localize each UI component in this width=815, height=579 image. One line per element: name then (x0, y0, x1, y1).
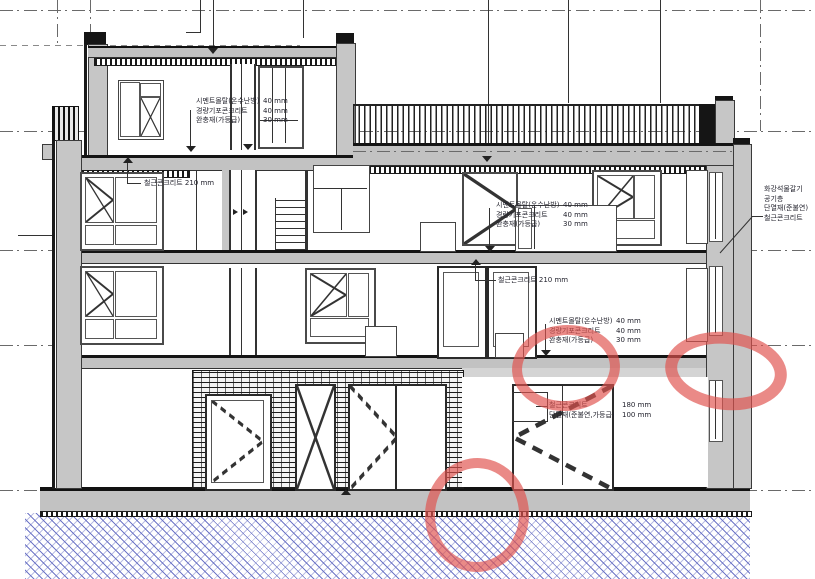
leader-floor-spec-2 (489, 208, 490, 246)
roof-railing-post (699, 104, 715, 144)
spec-label: 화강석물갈기 (764, 185, 815, 195)
leader-top-5 (568, 0, 569, 103)
spec-label: 시멘트몰탈(온수난방) (496, 201, 563, 211)
door-swing-symbol-icon (212, 401, 263, 482)
stair-wall (305, 170, 308, 250)
spec-value: 100 mm (622, 411, 651, 421)
right-outer-wall (733, 144, 752, 489)
window-3f-sliver (686, 170, 708, 244)
leader-wall-spec-h (752, 216, 763, 217)
section-drawing: 시멘트몰탈(온수난방)40 mm 경량기포콘크리트40 mm 완충재(가등급)3… (0, 0, 815, 579)
spec-label: 경량기포콘크리트 (196, 107, 263, 117)
penthouse-roof-slab (88, 46, 353, 58)
spec-value: 40 mm (616, 317, 641, 327)
leader-top-1-tick (186, 32, 200, 33)
terrace-slab-insulation (353, 166, 735, 174)
terrace-roof-slab (353, 143, 750, 166)
annotation-slab-spec-2: 철근콘크리트 210 mm (498, 276, 568, 286)
penthouse-wardrobe (118, 80, 164, 140)
spec-value: 40 mm (563, 201, 588, 211)
leader-arrow-icon (485, 246, 495, 252)
level-marker-4f-icon (243, 144, 253, 150)
spec-value: 40 mm (263, 97, 288, 107)
leader-top-6 (660, 0, 661, 103)
door-swing-symbol-icon (350, 386, 397, 489)
leader-arrow-icon (471, 259, 481, 265)
leader-left-wall-tick (18, 235, 54, 236)
3f-hall-wall (222, 170, 229, 250)
casement-symbol-icon (86, 272, 113, 316)
earth-hatch (25, 513, 750, 579)
ground-slab (40, 487, 750, 514)
annotation-slab-spec-1: 철근콘크리트 210 mm (144, 179, 214, 189)
stair-run (275, 198, 306, 250)
1f-door-1 (205, 394, 272, 491)
casement-symbol-icon (311, 274, 346, 316)
leader-arrow-icon (186, 146, 196, 152)
door-x-symbol-icon (297, 386, 334, 489)
2f-floor-slab (52, 355, 737, 369)
spec-label: 경량기포콘크리트 (496, 211, 563, 221)
penthouse-parapet-cap-left (84, 32, 106, 44)
right-wall-window-2f (709, 266, 723, 336)
leader-slab-spec-1 (127, 163, 128, 184)
leader-wall-spec (718, 213, 754, 255)
gridline-vertical-right (760, 0, 761, 131)
spec-label: 완충재(가등급) (496, 220, 563, 230)
annotation-floor-spec-2: 시멘트몰탈(온수난방)40 mm 경량기포콘크리트40 mm 완충재(가등급)3… (496, 201, 588, 230)
spec-value: 30 mm (616, 336, 641, 346)
spec-label: 완충재(가등급) (196, 116, 263, 126)
spec-value: 40 mm (563, 211, 588, 221)
spec-value: 180 mm (622, 401, 651, 411)
level-marker-terrace-icon (482, 156, 492, 162)
3f-ceiling-slab (52, 155, 353, 171)
3f-floor-slab (52, 250, 737, 264)
leader-top-2 (213, 0, 214, 48)
3f-desk (420, 222, 456, 252)
gridline-vertical-1 (57, 0, 58, 46)
leader-slab-spec-2 (475, 265, 476, 281)
penthouse-parapet-cap-right (336, 33, 354, 43)
3f-closet (313, 165, 370, 233)
leader-arrow-icon (123, 157, 133, 163)
leader-top-3 (303, 0, 304, 38)
door-swing-arrow-icon (233, 209, 238, 215)
leader-floor-spec-1 (190, 110, 191, 146)
1f-door-2 (295, 384, 336, 491)
spec-label: 공기층 (764, 195, 815, 205)
spec-value: 30 mm (563, 220, 588, 230)
ground-waterproofing-strip (40, 511, 752, 517)
spec-value: 40 mm (263, 107, 288, 117)
left-exterior-wall (56, 140, 82, 489)
gridline-horizontal-top (0, 10, 815, 11)
level-marker-roof-icon (208, 48, 218, 54)
penthouse-roof-insulation (94, 58, 350, 66)
annotation-wall-spec: 화강석물갈기 공기층 단열재(준불연) 철근콘크리트 (764, 185, 815, 223)
spec-label: 철근콘크리트 (764, 214, 815, 224)
level-marker-gl-icon (341, 489, 351, 495)
wardrobe-door-x-icon (141, 98, 160, 136)
spec-value: 30 mm (263, 116, 288, 126)
leader-slab-spec-1-h (127, 183, 141, 184)
leader-slab-spec-2-h (475, 280, 496, 281)
2f-chair (365, 326, 397, 357)
1f-door-3-left (348, 384, 399, 491)
leader-top-1 (200, 0, 201, 33)
roof-railing (353, 104, 714, 147)
annotation-floor-spec-1: 시멘트몰탈(온수난방)40 mm 경량기포콘크리트40 mm 완충재(가등급)3… (196, 97, 288, 126)
spec-value: 40 mm (616, 327, 641, 337)
casement-symbol-icon (86, 178, 113, 222)
spec-label: 단열재(준불연,가등급) (549, 411, 622, 421)
window-2f-left (80, 266, 164, 345)
gridline-terrace-level (353, 151, 750, 152)
spec-label: 시멘트몰탈(온수난방) (196, 97, 263, 107)
spec-label: 단열재(준불연) (764, 204, 815, 214)
door-swing-arrow-icon (243, 209, 248, 215)
window-2f-sliver (686, 268, 708, 342)
2f-door (229, 268, 257, 355)
